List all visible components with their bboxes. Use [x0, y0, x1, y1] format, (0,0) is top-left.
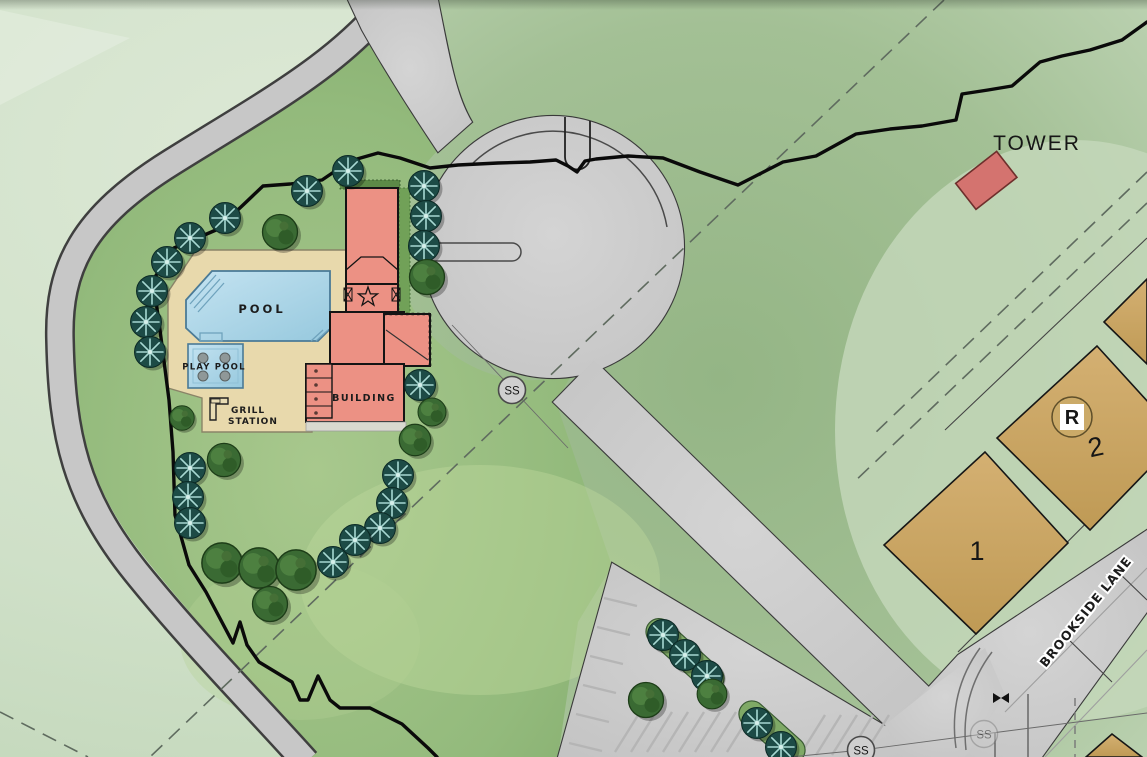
ss-label-3: SS	[976, 730, 992, 742]
ss-marker-1: SS	[499, 377, 526, 404]
play-pool: PLAY POOL	[182, 344, 245, 388]
play-pool-label: PLAY POOL	[182, 363, 245, 373]
top-edge-shade	[0, 0, 1147, 10]
building-label: BUILDING	[332, 393, 396, 404]
lot-1-label: 1	[969, 536, 984, 566]
site-plan-svg: POOL PLAY POOL	[0, 0, 1147, 757]
ss-label-1: SS	[504, 386, 520, 398]
pool-label: POOL	[238, 302, 285, 316]
lot-r-badge: R	[1052, 397, 1092, 437]
building-apron	[306, 422, 406, 431]
ss-marker-2: SS	[848, 737, 875, 757]
grill-station-label-2: STATION	[228, 417, 278, 427]
tower-label: TOWER	[993, 132, 1081, 155]
ss-label-2: SS	[853, 746, 869, 757]
site-plan-page: POOL PLAY POOL	[0, 0, 1147, 757]
grill-station-label-1: GRILL	[231, 406, 265, 416]
pool: POOL	[186, 271, 330, 341]
ss-marker-3: SS	[971, 721, 998, 748]
lot-r-label: R	[1065, 407, 1080, 429]
